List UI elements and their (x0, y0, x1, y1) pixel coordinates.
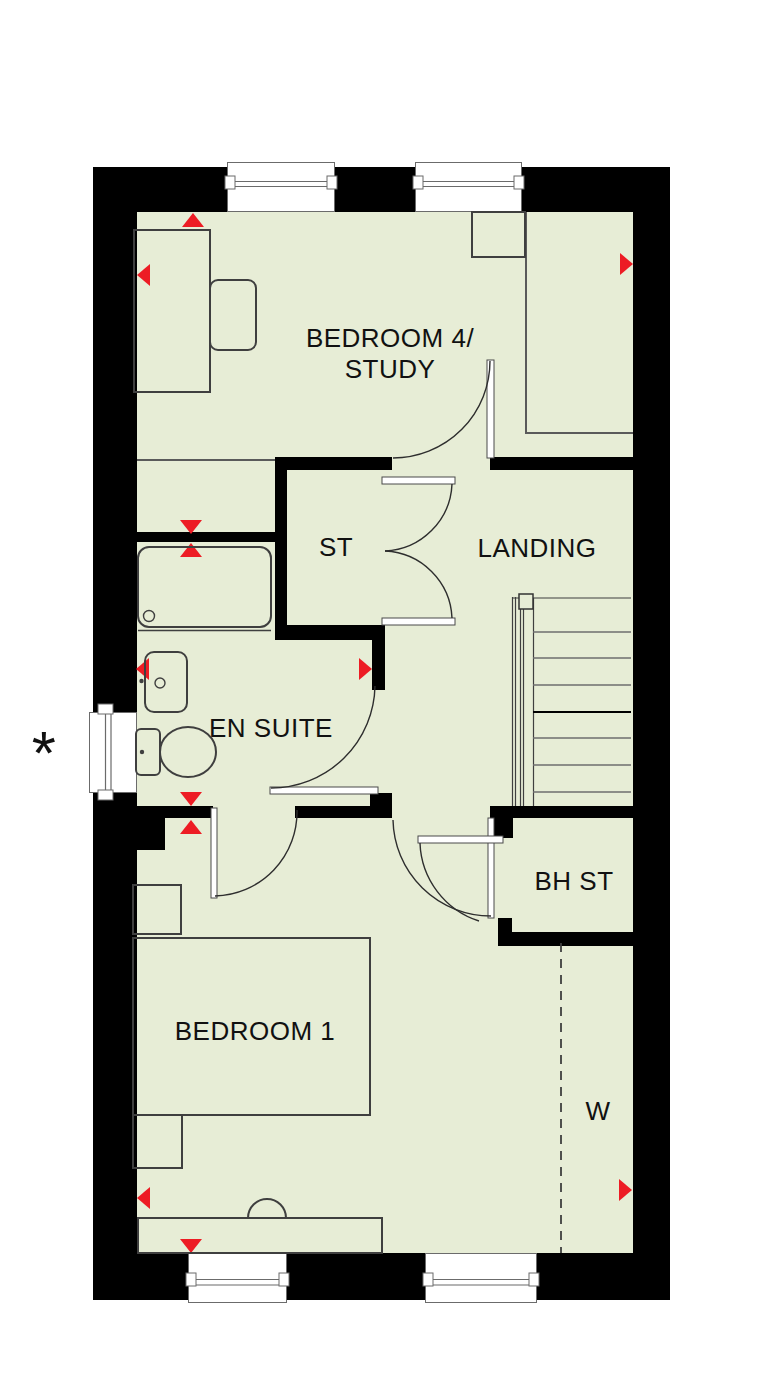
partition-bed4-left (275, 457, 392, 470)
partition-ensuite-bottom-step (137, 818, 165, 850)
partition-bed4-right (490, 457, 633, 470)
partition-hall-stub (370, 793, 392, 806)
window-bottom-right (425, 1253, 537, 1303)
room-label-bedroom4-line1: BEDROOM 4/ (265, 323, 515, 354)
bed4-nook-line-vertical (525, 212, 527, 433)
marker-right-icon (619, 1179, 632, 1201)
room-label-ensuite: EN SUITE (191, 713, 351, 744)
room-label-bhst: BH ST (509, 866, 639, 897)
room-label-st: ST (301, 532, 371, 563)
room-label-bedroom1: BEDROOM 1 (150, 1016, 360, 1047)
window-ensuite-left (89, 712, 137, 793)
room-label-bedroom4: BEDROOM 4/ STUDY (265, 323, 515, 385)
marker-left-icon (136, 658, 149, 680)
marker-up-icon (182, 213, 204, 227)
marker-left-icon (137, 1187, 150, 1209)
asterisk-note: * (29, 728, 59, 778)
partition-hall-mid (295, 806, 392, 818)
partition-ensuite-bottom (137, 806, 213, 818)
marker-down-icon (180, 520, 202, 534)
exterior-wall-top (93, 167, 670, 212)
partition-st-left (275, 457, 287, 637)
room-label-bedroom4-line2: STUDY (265, 354, 515, 385)
partition-ensuite-right (372, 628, 385, 690)
marker-left-icon (137, 264, 150, 286)
bed4-nook-line-horizontal (525, 432, 633, 434)
exterior-wall-right (633, 212, 670, 1300)
marker-up-icon (180, 543, 202, 557)
exterior-wall-bottom (93, 1253, 670, 1300)
marker-right-icon (359, 658, 372, 680)
bed4-lower-boundary-line (137, 459, 275, 461)
partition-ensuite-top (137, 532, 287, 542)
window-bottom-left (188, 1253, 287, 1303)
partition-bhst-bottom (498, 932, 633, 946)
room-label-wardrobe: W (578, 1096, 618, 1127)
marker-up-icon (180, 820, 202, 834)
window-top-right (415, 162, 522, 212)
floor-plan: BEDROOM 4/ STUDY ST LANDING EN SUITE BH … (0, 0, 767, 1392)
room-label-landing: LANDING (462, 533, 612, 564)
partition-bhst-left-top (493, 818, 513, 838)
partition-st-bottom (275, 625, 385, 640)
marker-down-icon (180, 1239, 202, 1253)
window-top-left (227, 162, 335, 212)
marker-down-icon (180, 792, 202, 806)
partition-stairs-bottom (490, 806, 633, 818)
marker-right-icon (620, 253, 633, 275)
